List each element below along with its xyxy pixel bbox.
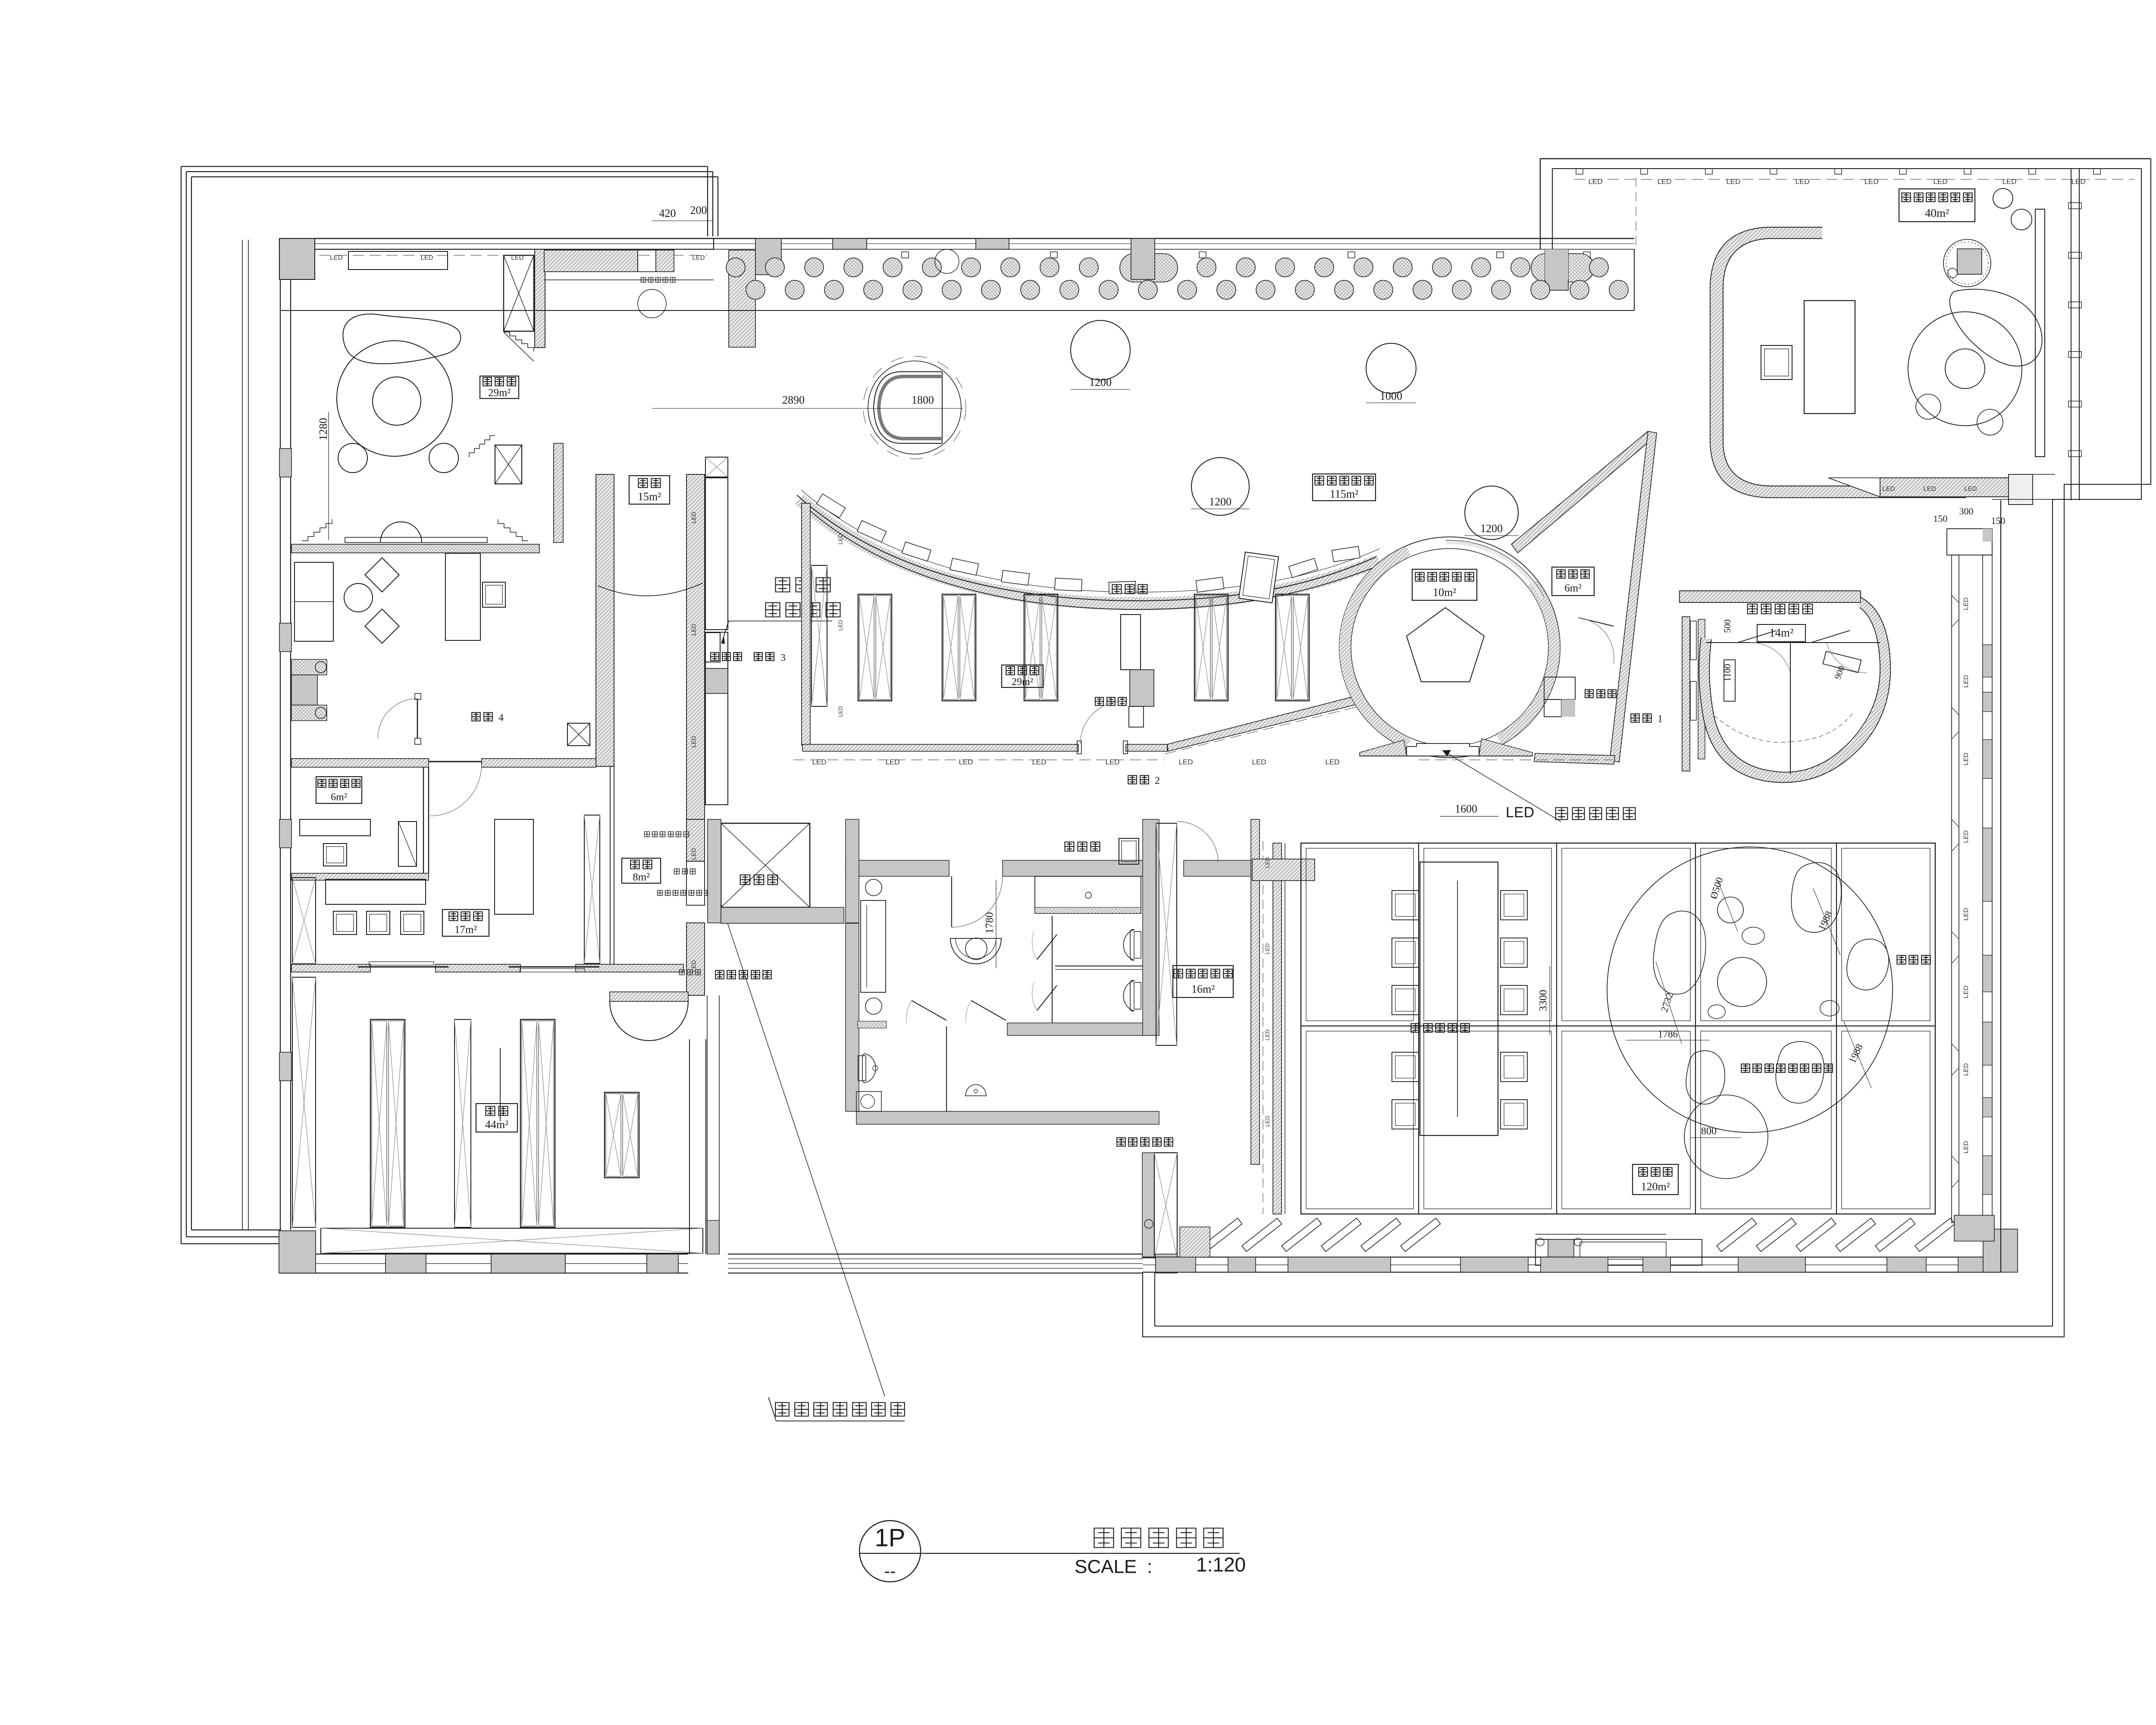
- svg-text:LED: LED: [1032, 758, 1046, 766]
- svg-text:LED: LED: [1264, 943, 1270, 954]
- svg-text:LED: LED: [1923, 485, 1936, 492]
- svg-text:150: 150: [1934, 513, 1948, 524]
- svg-text:2890: 2890: [782, 394, 805, 406]
- svg-text:LED: LED: [330, 254, 342, 261]
- svg-text:LED: LED: [1105, 758, 1119, 766]
- svg-text:LED: LED: [690, 848, 697, 859]
- svg-text:LED: LED: [1964, 485, 1977, 492]
- svg-text:29m²: 29m²: [488, 387, 511, 399]
- svg-text:LED: LED: [1962, 908, 1970, 920]
- svg-text:LED: LED: [1882, 485, 1895, 492]
- svg-text:1780: 1780: [984, 912, 996, 934]
- svg-text:1600: 1600: [1455, 803, 1477, 815]
- svg-text:1280: 1280: [317, 418, 329, 440]
- svg-text:LED: LED: [812, 758, 826, 766]
- svg-text:29m²: 29m²: [1012, 677, 1033, 688]
- svg-text:LED: LED: [1726, 177, 1740, 185]
- svg-text:1100: 1100: [1722, 664, 1733, 681]
- svg-text:SCALE: SCALE: [1075, 1556, 1137, 1578]
- svg-text:LED: LED: [690, 624, 697, 635]
- svg-text:LED: LED: [420, 254, 433, 261]
- svg-text:1800: 1800: [912, 394, 934, 406]
- svg-text:44m²: 44m²: [485, 1118, 508, 1131]
- svg-text:LED: LED: [1962, 1063, 1970, 1076]
- svg-text:800: 800: [1701, 1126, 1717, 1137]
- svg-text:4: 4: [498, 712, 504, 724]
- svg-text:LED: LED: [837, 533, 843, 544]
- svg-text:LED: LED: [690, 736, 697, 747]
- svg-text:LED: LED: [1795, 177, 1809, 185]
- svg-text:1200: 1200: [1480, 522, 1503, 535]
- svg-text:LED: LED: [1962, 985, 1970, 998]
- svg-text:LED: LED: [1962, 597, 1970, 610]
- svg-text:1:120: 1:120: [1196, 1553, 1246, 1576]
- svg-text:LED: LED: [837, 706, 843, 717]
- svg-text:6m²: 6m²: [1564, 583, 1581, 594]
- svg-text:LED: LED: [1962, 830, 1970, 843]
- svg-text:1200: 1200: [1089, 376, 1112, 389]
- svg-text:LED: LED: [690, 960, 697, 972]
- svg-text:LED: LED: [511, 254, 523, 261]
- svg-text:16m²: 16m²: [1191, 983, 1215, 995]
- svg-text:420: 420: [659, 207, 676, 220]
- svg-text:3300: 3300: [1538, 990, 1549, 1011]
- svg-text:8m²: 8m²: [633, 872, 649, 883]
- svg-text:1200: 1200: [1209, 496, 1232, 508]
- svg-text::: :: [1147, 1556, 1152, 1578]
- svg-text:LED: LED: [2002, 177, 2016, 185]
- svg-text:LED: LED: [692, 254, 705, 261]
- svg-text:1: 1: [1658, 714, 1663, 725]
- svg-text:LED: LED: [1588, 177, 1602, 185]
- svg-text:120m²: 120m²: [1641, 1180, 1670, 1193]
- svg-text:LED: LED: [1252, 758, 1266, 766]
- svg-text:1000: 1000: [1380, 390, 1402, 402]
- svg-text:LED: LED: [1657, 177, 1671, 185]
- svg-text:LED: LED: [1264, 1029, 1270, 1040]
- svg-text:200: 200: [690, 204, 707, 216]
- svg-text:LED: LED: [1933, 177, 1947, 185]
- svg-text:300: 300: [1959, 506, 1974, 517]
- svg-text:LED: LED: [1264, 1116, 1270, 1126]
- svg-text:115m²: 115m²: [1330, 488, 1358, 500]
- svg-text:LED: LED: [1962, 1141, 1970, 1153]
- svg-text:150: 150: [1991, 515, 2006, 526]
- svg-text:LED: LED: [1864, 177, 1878, 185]
- svg-text:LED: LED: [2071, 177, 2085, 185]
- svg-text:LED: LED: [885, 758, 899, 766]
- svg-text:LED: LED: [1962, 675, 1970, 687]
- svg-text:3: 3: [780, 652, 786, 663]
- svg-text:LED: LED: [1178, 758, 1193, 766]
- svg-text:LED: LED: [1264, 857, 1270, 868]
- svg-text:17m²: 17m²: [454, 924, 477, 936]
- svg-text:LED: LED: [959, 758, 973, 766]
- svg-text:1P: 1P: [875, 1524, 906, 1552]
- svg-text:LED: LED: [1962, 753, 1970, 765]
- svg-text:LED: LED: [690, 511, 697, 523]
- svg-text:40m²: 40m²: [1925, 207, 1949, 220]
- svg-text:LED: LED: [837, 620, 843, 630]
- svg-text:1786: 1786: [1658, 1029, 1678, 1039]
- svg-text:10m²: 10m²: [1433, 586, 1456, 599]
- svg-text:--: --: [884, 1562, 896, 1581]
- svg-text:LED: LED: [1506, 804, 1534, 821]
- svg-text:LED: LED: [1325, 758, 1339, 766]
- svg-text:2: 2: [1155, 775, 1160, 787]
- svg-text:15m²: 15m²: [638, 490, 661, 503]
- svg-text:500: 500: [1722, 619, 1733, 633]
- svg-text:6m²: 6m²: [331, 792, 347, 803]
- svg-text:14m²: 14m²: [1769, 626, 1793, 639]
